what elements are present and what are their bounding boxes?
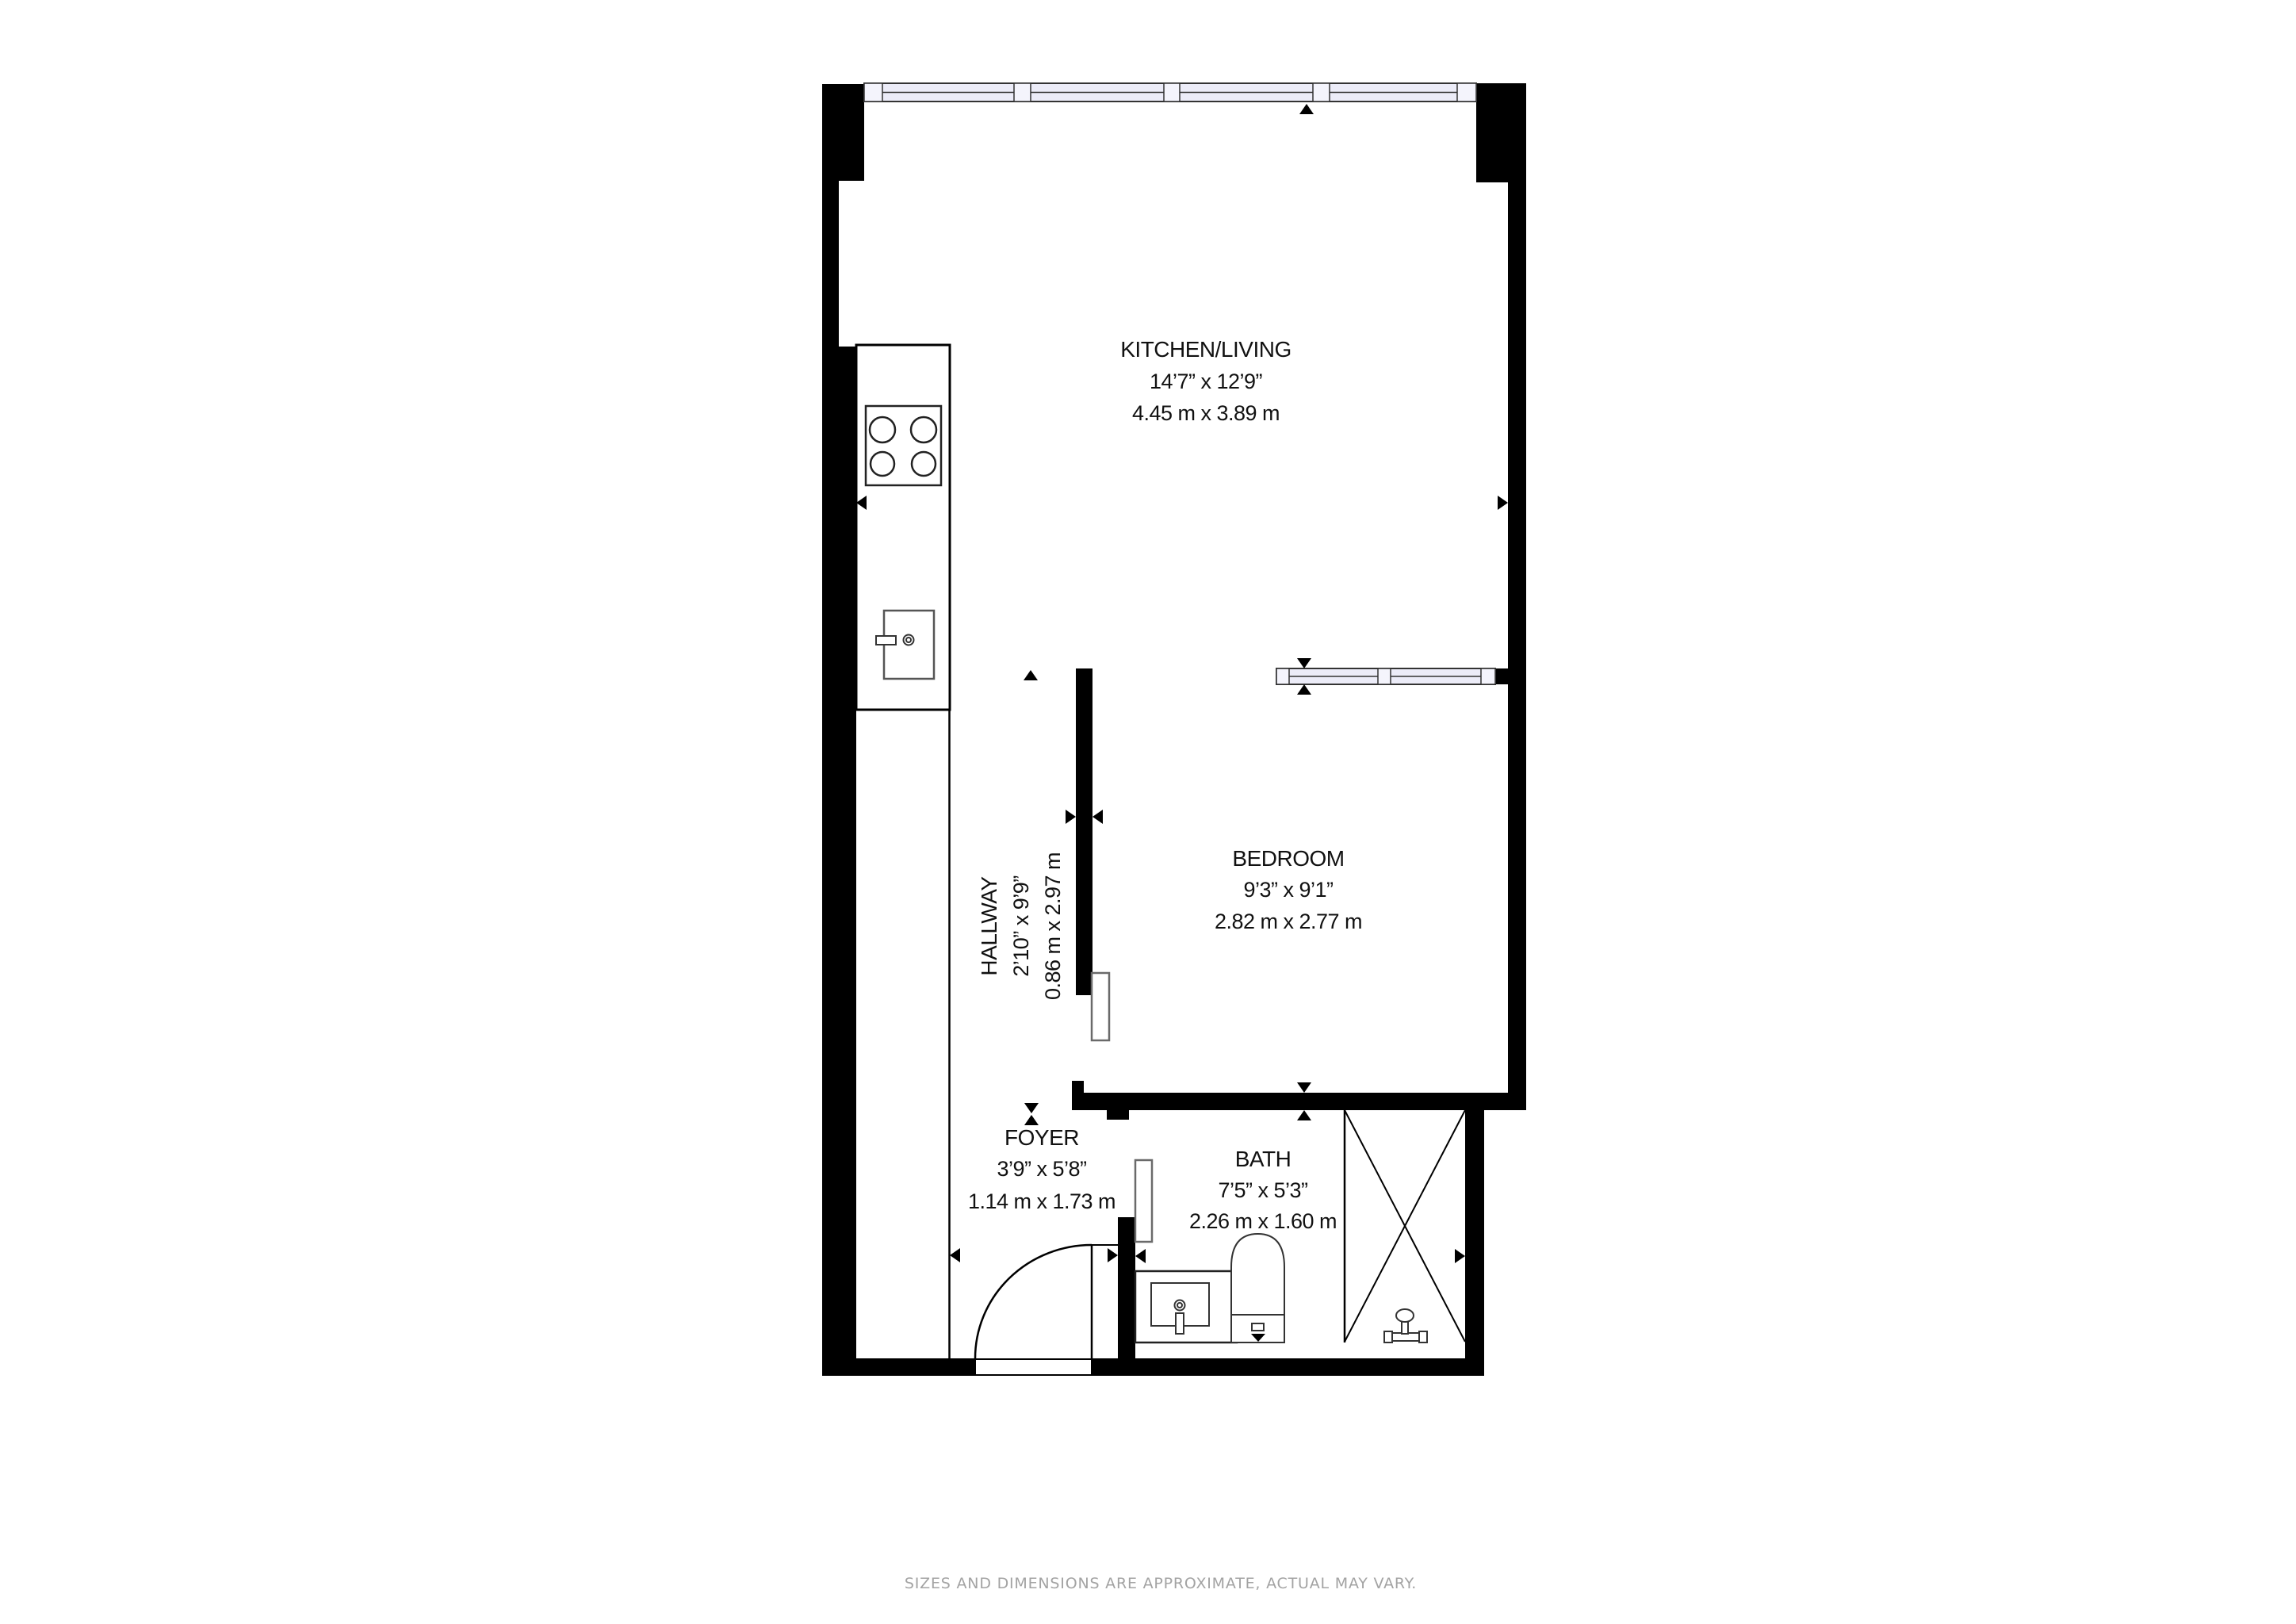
shower-valve-cap — [1419, 1331, 1427, 1342]
stove-burner — [871, 452, 894, 476]
kitchen-sink-icon — [876, 611, 934, 679]
wall-bottom-right — [1092, 1358, 1484, 1376]
room-imperial-dim: 14’7” x 12’9” — [1150, 370, 1262, 393]
stove-burner — [870, 417, 895, 442]
toilet-flush-button — [1252, 1323, 1264, 1331]
stove-burner — [912, 452, 936, 476]
window-frame-mullion — [1014, 83, 1031, 101]
sink-drain-inner — [906, 638, 911, 642]
toilet-bowl — [1231, 1234, 1284, 1315]
wall-hallway-bedroom — [1076, 668, 1093, 995]
vanity-sink-icon — [1135, 1271, 1237, 1342]
window-frame-mullion — [1457, 83, 1476, 101]
dimension-arrow-down — [1024, 1103, 1039, 1113]
dimension-arrow-up — [1297, 1110, 1311, 1120]
label-bath: BATH 7’5” x 5’3” 2.26 m x 1.60 m — [1189, 1147, 1337, 1233]
footer-disclaimer: SIZES AND DIMENSIONS ARE APPROXIMATE, AC… — [905, 1575, 1417, 1592]
vanity-faucet — [1176, 1313, 1184, 1334]
dimension-arrow-up — [1299, 104, 1314, 114]
dimension-arrow-down — [1297, 658, 1311, 668]
top-window-assembly — [864, 83, 1476, 101]
bedroom-window-assembly — [1276, 668, 1495, 684]
stove-burner — [911, 417, 936, 442]
wall-bedroom-bottom — [1072, 1093, 1526, 1110]
dimension-arrow-right — [1108, 1248, 1118, 1262]
label-foyer: FOYER 3’9” x 5’8” 1.14 m x 1.73 m — [968, 1125, 1115, 1213]
door-threshold — [975, 1359, 1092, 1375]
room-name: FOYER — [1004, 1125, 1079, 1150]
shower-valve — [1384, 1309, 1427, 1342]
room-name: BEDROOM — [1232, 846, 1344, 871]
window-frame-mullion — [864, 83, 882, 101]
wall-bottom-left — [856, 1358, 975, 1376]
room-metric-dim: 0.86 m x 2.97 m — [1041, 852, 1065, 1000]
wall-bath-door-jamb — [1107, 1110, 1129, 1120]
wall-bedroom-bottom-step — [1072, 1081, 1084, 1093]
shower-valve-head — [1396, 1309, 1414, 1322]
toilet-icon — [1231, 1234, 1284, 1342]
dimension-arrow-right — [1498, 496, 1508, 510]
dimension-arrow-up — [1024, 670, 1038, 680]
dimension-arrow-right — [1066, 810, 1076, 824]
room-imperial-dim: 2’10” x 9’9” — [1009, 875, 1033, 977]
window-frame-mullion — [1276, 668, 1289, 684]
window-frame-mullion — [1164, 83, 1180, 101]
label-kitchen-living: KITCHEN/LIVING 14’7” x 12’9” 4.45 m x 3.… — [1120, 337, 1291, 425]
walls — [822, 83, 1526, 1376]
wall-top-right-corner — [1476, 83, 1526, 182]
window-frame-mullion — [1313, 83, 1330, 101]
wall-left-upper-thin — [822, 181, 839, 347]
dimension-arrow-left — [950, 1248, 960, 1262]
vanity-drain-inner — [1177, 1303, 1182, 1308]
room-metric-dim: 2.82 m x 2.77 m — [1215, 910, 1362, 933]
shower-enclosure-icon — [1345, 1110, 1465, 1342]
bedroom-door-panel — [1092, 973, 1109, 1040]
bath-door-panel — [1135, 1160, 1152, 1242]
window-frame-mullion — [1378, 668, 1391, 684]
room-metric-dim: 1.14 m x 1.73 m — [968, 1189, 1115, 1213]
room-imperial-dim: 3’9” x 5’8” — [997, 1157, 1086, 1181]
wall-bath-right — [1465, 1110, 1484, 1374]
floor-plan-svg: KITCHEN/LIVING 14’7” x 12’9” 4.45 m x 3.… — [0, 0, 2296, 1624]
wall-right-main — [1508, 182, 1526, 1110]
wall-left-main — [822, 347, 856, 1376]
room-name: KITCHEN/LIVING — [1120, 337, 1291, 362]
wall-foyer-bath-stub — [1118, 1217, 1135, 1358]
room-imperial-dim: 9’3” x 9’1” — [1243, 878, 1333, 902]
dimension-arrow-down — [1297, 1082, 1311, 1093]
kitchen-counter — [856, 345, 950, 710]
room-name: BATH — [1235, 1147, 1291, 1171]
dimension-arrow-up — [1024, 1115, 1039, 1125]
door-swing-icon — [975, 1245, 1092, 1358]
label-hallway: HALLWAY 2’10” x 9’9” 0.86 m x 2.97 m — [977, 852, 1065, 1000]
label-bedroom: BEDROOM 9’3” x 9’1” 2.82 m x 2.77 m — [1215, 846, 1362, 933]
dimension-arrow-up — [1297, 684, 1311, 695]
room-metric-dim: 4.45 m x 3.89 m — [1132, 401, 1280, 425]
dimension-arrow-left — [1093, 810, 1103, 824]
room-imperial-dim: 7’5” x 5’3” — [1218, 1178, 1307, 1202]
room-metric-dim: 2.26 m x 1.60 m — [1189, 1209, 1337, 1233]
stove-burners-icon — [866, 406, 941, 485]
window-frame-mullion — [1481, 668, 1495, 684]
dimension-arrow-right — [1455, 1249, 1465, 1263]
entry-door — [975, 1245, 1118, 1375]
room-name: HALLWAY — [977, 876, 1001, 976]
dimension-arrow-left — [1135, 1249, 1146, 1263]
floor-plan-page: KITCHEN/LIVING 14’7” x 12’9” 4.45 m x 3.… — [0, 0, 2296, 1624]
sink-faucet-handle — [876, 636, 896, 645]
shower-valve-cap — [1384, 1331, 1392, 1342]
wall-bedroom-window-connector — [1495, 668, 1508, 684]
wall-top-left-corner — [822, 84, 864, 181]
